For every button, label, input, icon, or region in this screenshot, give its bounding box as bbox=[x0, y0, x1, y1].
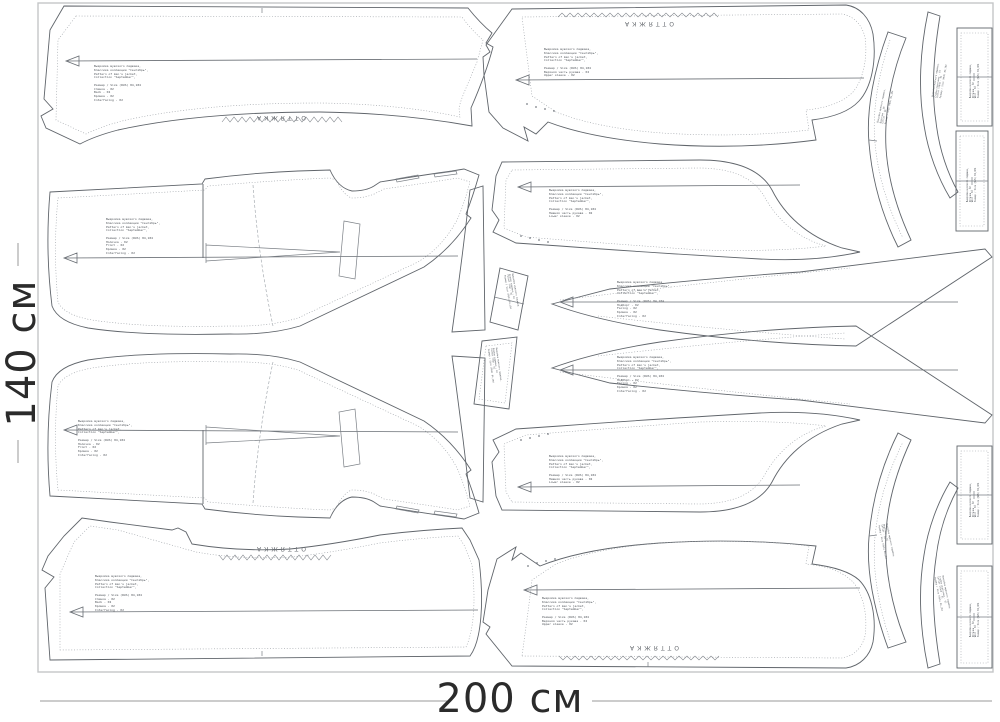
piece-label-front-bottom: Выкройка мужского пиджака, Классика колл… bbox=[78, 420, 132, 458]
dot bbox=[535, 106, 537, 108]
dot bbox=[538, 435, 540, 437]
edge-notch-ticks bbox=[262, 8, 648, 667]
piece-collar-stand-bottom-outline bbox=[921, 482, 958, 668]
pocket-welt-front-bottom bbox=[339, 409, 360, 467]
grain-line-upper-sleeve-bottom bbox=[524, 588, 860, 590]
pocket-welt-front-top bbox=[339, 221, 360, 279]
piece-label-strip-top-1: Выкройка мужского пиджака, Обтачка - 02 … bbox=[970, 52, 980, 98]
shoulder-slits-front-top bbox=[396, 171, 457, 182]
dot bbox=[520, 439, 522, 441]
dot bbox=[520, 235, 522, 237]
dot bbox=[527, 565, 529, 567]
dot bbox=[529, 437, 531, 439]
dimension-lines bbox=[18, 243, 992, 701]
dot bbox=[554, 558, 556, 560]
seam-facing-top bbox=[560, 268, 850, 339]
piece-outlines bbox=[41, 5, 992, 668]
stretch-label-upper-sleeve-top: ОТТЯЖКА bbox=[611, 20, 685, 27]
piece-label-back-top: Выкройка мужского пиджака, Классика колл… bbox=[94, 65, 148, 103]
piece-label-facing-bottom: Выкройка мужского пиджака, Классика колл… bbox=[617, 356, 671, 394]
collar-notches bbox=[869, 140, 877, 536]
dot bbox=[545, 560, 547, 562]
piece-label-strip-bottom-2: Выкройка мужского пиджака, Обтачка - 02 … bbox=[970, 591, 980, 637]
dot bbox=[547, 241, 549, 243]
roll-line-front-bottom bbox=[253, 362, 273, 503]
grain-line-under-sleeve-top bbox=[518, 185, 800, 187]
dot bbox=[529, 237, 531, 239]
grain-line-under-sleeve-bottom bbox=[518, 485, 800, 487]
grain-line-upper-sleeve-top bbox=[516, 78, 864, 80]
piece-under-sleeve-top-outline bbox=[492, 160, 860, 260]
piece-label-upper-sleeve-bottom: Выкройка мужского пиджака, Классика колл… bbox=[542, 597, 596, 627]
piece-label-under-sleeve-top: Выкройка мужского пиджака, Классика колл… bbox=[549, 189, 603, 219]
piece-collar-stand-top-outline bbox=[921, 12, 958, 198]
roll-line-front-top bbox=[253, 185, 273, 326]
drill-dots bbox=[520, 103, 556, 567]
dot bbox=[547, 433, 549, 435]
dot bbox=[538, 239, 540, 241]
piece-label-facing-top: Выкройка мужского пиджака, Классика колл… bbox=[617, 281, 671, 319]
seam-facing-bottom bbox=[560, 333, 850, 404]
roll-lines bbox=[253, 185, 273, 503]
piece-label-strip-top-2: Выкройка мужского пиджака, Обтачка - 02 … bbox=[967, 156, 977, 202]
stretch-label-back-bottom: ОТТЯЖКА bbox=[243, 545, 317, 552]
stretch-zigzags bbox=[219, 13, 719, 660]
dot bbox=[553, 110, 555, 112]
seam-lines bbox=[56, 14, 989, 663]
dot bbox=[526, 103, 528, 105]
piece-label-upper-sleeve-top: Выкройка мужского пиджака, Классика колл… bbox=[544, 48, 598, 78]
dart-front-top bbox=[206, 243, 340, 263]
grain-arrows bbox=[64, 56, 958, 617]
fabric-width-label: 200 см bbox=[392, 676, 628, 722]
grain-line-back-top bbox=[66, 59, 477, 61]
piece-under-sleeve-bottom-outline bbox=[492, 412, 860, 512]
zigzag-upper-sleeve-top bbox=[558, 13, 718, 17]
piece-label-back-bottom: Выкройка мужского пиджака, Классика колл… bbox=[95, 575, 149, 613]
stretch-label-upper-sleeve-bottom: ОТТЯЖКА bbox=[616, 644, 690, 651]
fabric-height-label: 140 см bbox=[0, 258, 43, 448]
pattern-marker-layout: Выкройка мужского пиджака, Классика колл… bbox=[0, 0, 1000, 716]
dart-front-bottom bbox=[206, 425, 340, 445]
shoulder-slits-front-bottom bbox=[396, 506, 457, 517]
dot bbox=[544, 108, 546, 110]
marker-canvas bbox=[0, 0, 1000, 716]
zigzag-upper-sleeve-bottom bbox=[559, 656, 719, 660]
piece-label-under-sleeve-bottom: Выкройка мужского пиджака, Классика колл… bbox=[549, 455, 603, 485]
dot bbox=[536, 562, 538, 564]
piece-label-strip-bottom-1: Выкройка мужского пиджака, Обтачка - 02 … bbox=[970, 471, 980, 517]
piece-label-front-top: Выкройка мужского пиджака, Классика колл… bbox=[106, 218, 160, 256]
stretch-label-back-top: ОТТЯЖКА bbox=[243, 114, 317, 121]
